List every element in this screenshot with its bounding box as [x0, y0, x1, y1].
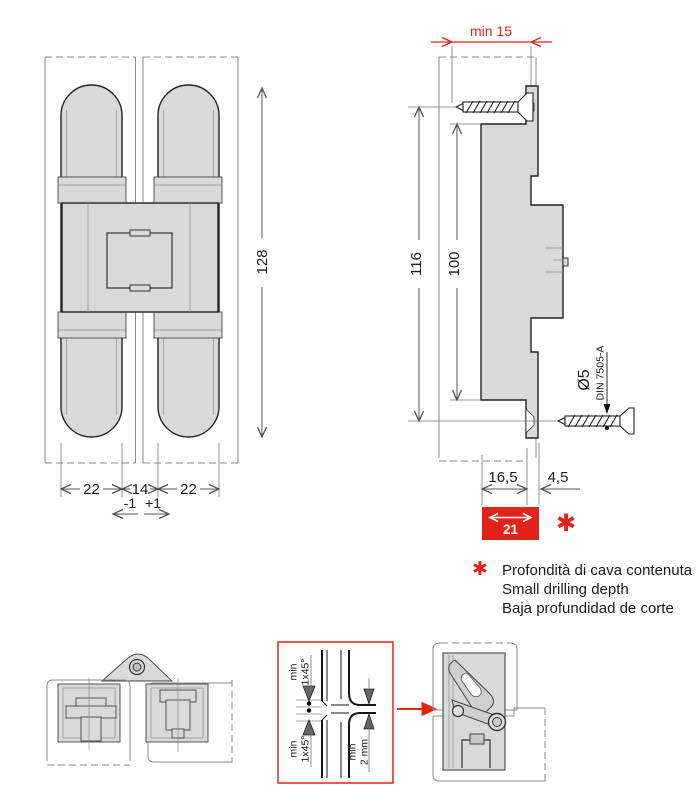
dim-widths: 22 14 22 — [61, 443, 219, 498]
screw-diameter-label: Ø5 — [576, 369, 593, 390]
dim-width-right-label: 22 — [180, 481, 197, 498]
screw-top — [456, 93, 533, 121]
leader-arrow — [604, 404, 611, 414]
dim-offset-label: 4,5 — [548, 469, 569, 486]
svg-text:min: min — [288, 740, 300, 757]
closed-view — [433, 643, 545, 781]
chamfer-point-bottom — [307, 708, 311, 712]
detail-box: min 1x45° min 1x45° min 2 mm — [278, 642, 393, 783]
svg-text:1x45°: 1x45° — [300, 659, 312, 686]
closed-view-mechanism — [443, 653, 506, 770]
footnote-line-es: Baja profundidad de corte — [502, 600, 674, 617]
drawing-page: 128 22 14 22 -1 +1 — [0, 0, 698, 800]
dim-groove-depth-label: 16,5 — [488, 469, 517, 486]
svg-text:1x45°: 1x45° — [300, 736, 312, 763]
open-view — [47, 654, 232, 765]
dim-min-edge-label: min 15 — [470, 23, 512, 39]
dim-height-label: 128 — [254, 249, 271, 274]
pivot-small — [453, 706, 464, 717]
hinge-technical-drawing: 128 22 14 22 -1 +1 — [0, 0, 698, 800]
open-view-mortise-left — [58, 678, 120, 750]
total-depth-label: 21 — [503, 522, 519, 537]
screw-bottom — [558, 408, 634, 434]
dim-inner-label: 100 — [446, 251, 463, 276]
total-depth-box: 21 — [482, 507, 539, 540]
tolerance-label-minus: -1 — [124, 495, 137, 511]
footnote-line-it: Profondità di cava contenuta — [502, 562, 693, 579]
open-view-mortise-right — [146, 678, 208, 752]
hinge-profile — [481, 86, 568, 438]
dim-outer-label: 116 — [408, 252, 425, 276]
dim-inner: 100 — [446, 124, 481, 400]
open-view-linkage — [102, 654, 172, 681]
side-view: min 15 — [408, 23, 634, 540]
hinge-body — [62, 203, 218, 312]
svg-text:2 mm: 2 mm — [359, 739, 371, 766]
dim-width-left-label: 22 — [83, 481, 100, 498]
dim-groove-depth: 16,5 — [482, 448, 527, 505]
footnote: ✱ Profondità di cava contenuta Small dri… — [472, 559, 693, 617]
svg-text:min: min — [288, 663, 300, 680]
footnote-marker: ✱ — [472, 559, 488, 580]
dim-offset: 4,5 — [539, 443, 580, 505]
svg-text:min: min — [347, 743, 359, 760]
tolerance-label-plus: +1 — [145, 495, 161, 511]
dim-height: 128 — [254, 88, 271, 437]
leader-dot — [605, 426, 609, 430]
footnote-line-en: Small drilling depth — [502, 581, 629, 598]
front-view: 128 22 14 22 -1 +1 — [45, 57, 271, 514]
red-arrow — [397, 703, 436, 716]
knuckle-latch — [563, 258, 568, 266]
screw-standard-label: DIN 7505-A — [595, 346, 607, 401]
asterisk-marker: ✱ — [556, 510, 576, 537]
